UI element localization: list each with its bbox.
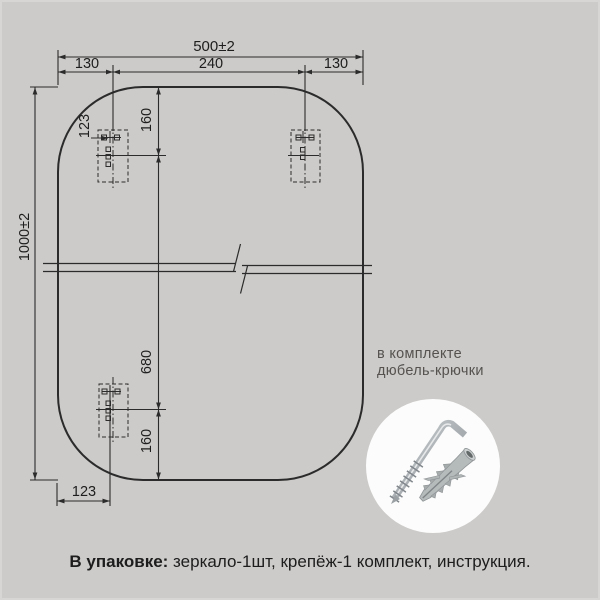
- dim-hook-inset-top: 123: [77, 114, 93, 138]
- mirror-outline: [58, 87, 363, 480]
- dim-hook-to-hook: 680: [139, 350, 155, 374]
- technical-drawing: 500±2 130 240 130 1000±2 123 160 680 160…: [0, 0, 600, 600]
- included-note-line2: дюбель-крючки: [377, 363, 484, 380]
- dim-total-height: 1000±2: [17, 213, 33, 261]
- package-contents: В упаковке: зеркало-1шт, крепёж-1 компле…: [0, 552, 600, 572]
- dim-total-width: 500±2: [193, 38, 235, 55]
- dim-top-left-margin: 130: [75, 56, 99, 72]
- included-note-line1: в комплекте: [377, 346, 484, 363]
- dim-edge-to-hook-top: 160: [139, 108, 155, 132]
- mounting-bracket-top-right: [288, 123, 320, 189]
- included-note: в комплекте дюбель-крючки: [377, 346, 484, 380]
- break-line: [43, 244, 372, 294]
- dim-hook-span: 240: [199, 56, 223, 72]
- package-contents-text: зеркало-1шт, крепёж-1 комплект, инструкц…: [168, 552, 530, 571]
- dim-hook-inset-bottom: 123: [72, 484, 96, 500]
- mirror-dimension-diagram: 500±2 130 240 130 1000±2 123 160 680 160…: [0, 0, 600, 600]
- dim-hook-to-edge-bottom: 160: [139, 429, 155, 453]
- hardware-photo-circle: [366, 399, 500, 533]
- dim-top-right-margin: 130: [324, 56, 348, 72]
- package-contents-label: В упаковке:: [69, 552, 168, 571]
